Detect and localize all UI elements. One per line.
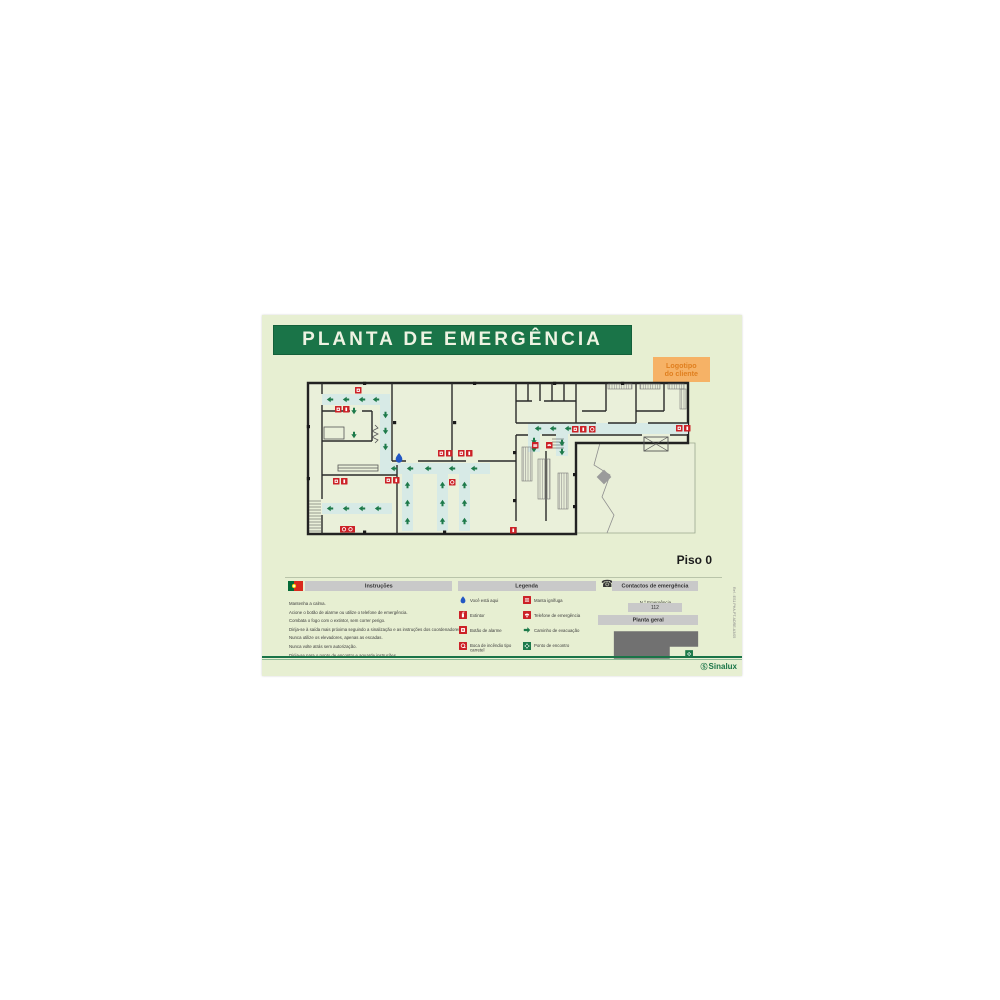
instructions-list: Mantenha a calma.Acione o botão de alarm…	[289, 596, 461, 656]
legend-item-label: Caminho de evacuação	[534, 628, 588, 633]
evacuation-route-icon	[523, 626, 531, 634]
ext-plan-icon	[466, 450, 473, 457]
legend-item-label: Boca de incêndio tipo carretel	[470, 643, 524, 653]
legend-title: Legenda	[516, 583, 539, 589]
alarm-plan-icon	[335, 406, 342, 413]
legend-item: Telefone de emergência	[523, 611, 597, 626]
alarm-plan-icon	[333, 478, 340, 485]
legend-item: Você está aqui	[459, 596, 523, 611]
floor-label: Piso 0	[677, 553, 712, 567]
section-divider	[285, 577, 722, 578]
portugal-flag-icon	[288, 581, 303, 591]
extinguisher-icon	[459, 611, 467, 619]
legend-item: Caminho de evacuação	[523, 626, 597, 641]
legend-item-label: Ponto de encontro	[534, 643, 588, 648]
footer-rule	[262, 656, 742, 658]
logo-line-2: do cliente	[665, 369, 698, 377]
fire-hose-reel-icon	[459, 642, 467, 650]
legend-item-label: Botão de alarme	[470, 628, 524, 633]
overview-header: Planta geral	[598, 615, 698, 625]
legend-column-right: Manta ignífugaTelefone de emergênciaCami…	[523, 596, 597, 657]
emergency-phone-icon	[523, 611, 531, 619]
legend-item: Extintor	[459, 611, 523, 626]
hose-plan-icon	[449, 479, 456, 486]
poster-title-bar: PLANTA DE EMERGÊNCIA	[273, 325, 632, 355]
ext-plan-icon	[341, 478, 348, 485]
hose-plan-icon	[589, 426, 596, 433]
terrace-area	[576, 443, 695, 533]
legend-item: Boca de incêndio tipo carretel	[459, 642, 523, 657]
alarm-plan-icon	[355, 387, 362, 394]
ext-plan-icon	[510, 527, 517, 534]
legend-column-left: Você está aquiExtintorBotão de alarmeBoc…	[459, 596, 523, 657]
blanket-plan-icon	[532, 442, 539, 449]
alarm-plan-icon	[385, 477, 392, 484]
alarm-plan-icon	[458, 450, 465, 457]
legend-header: Legenda	[458, 581, 596, 591]
instructions-title: Instruções	[365, 583, 393, 589]
reference-code: Ref.: ES1 PHA-PT-ADRE-A3/05	[732, 587, 741, 706]
emergency-number-box: 112	[628, 603, 682, 612]
legend-item-label: Manta ignífuga	[534, 598, 588, 603]
instruction-item: Dirija-se à saída mais próxima seguindo …	[289, 622, 461, 631]
instruction-item: Combata o fogo com o extintor, sem corre…	[289, 613, 461, 622]
brand-mark: Ⓢ	[701, 664, 708, 671]
emergency-plan-poster: PLANTA DE EMERGÊNCIA Logotipo do cliente	[262, 315, 742, 676]
footer-rule-thin	[262, 659, 742, 660]
legend-item: Ponto de encontro	[523, 642, 597, 657]
contacts-title: Contactos de emergência	[622, 583, 689, 589]
phone-plan-icon	[546, 442, 553, 449]
ext-plan-icon	[446, 450, 453, 457]
page-background: PLANTA DE EMERGÊNCIA Logotipo do cliente	[0, 0, 1000, 1000]
alarm-plan-icon	[438, 450, 445, 457]
wide-plan-icon	[340, 526, 355, 533]
instruction-item: Acione o botão de alarme ou utilize o te…	[289, 605, 461, 614]
client-logo-placeholder: Logotipo do cliente	[653, 357, 710, 382]
ext-plan-icon	[343, 406, 350, 413]
you-are-here-icon	[459, 596, 467, 604]
contacts-header: Contactos de emergência	[612, 581, 698, 591]
ext-plan-icon	[580, 426, 587, 433]
fire-blanket-icon	[523, 596, 531, 604]
meeting-point-icon	[523, 642, 531, 650]
legend-item-label: Você está aqui	[470, 598, 524, 603]
instructions-header: Instruções	[305, 581, 452, 591]
instruction-item: Nunca volte atrás sem autorização.	[289, 639, 461, 648]
alarm-button-icon	[459, 626, 467, 634]
ext-plan-icon	[393, 477, 400, 484]
poster-title: PLANTA DE EMERGÊNCIA	[302, 329, 603, 351]
instruction-item: Nunca utilize os elevadores, apenas as e…	[289, 630, 461, 639]
ext-plan-icon	[684, 425, 691, 432]
legend-item-label: Extintor	[470, 613, 524, 618]
instruction-item: Dirija-se para o ponto de encontro e agu…	[289, 648, 461, 657]
emergency-number: 112	[651, 605, 659, 611]
legend-item-label: Telefone de emergência	[534, 613, 588, 618]
overview-title: Planta geral	[632, 617, 663, 623]
legend-item: Botão de alarme	[459, 626, 523, 641]
alarm-plan-icon	[676, 425, 683, 432]
floor-plan	[306, 381, 696, 543]
instruction-item: Mantenha a calma.	[289, 596, 461, 605]
legend-item: Manta ignífuga	[523, 596, 597, 611]
alarm-plan-icon	[572, 426, 579, 433]
